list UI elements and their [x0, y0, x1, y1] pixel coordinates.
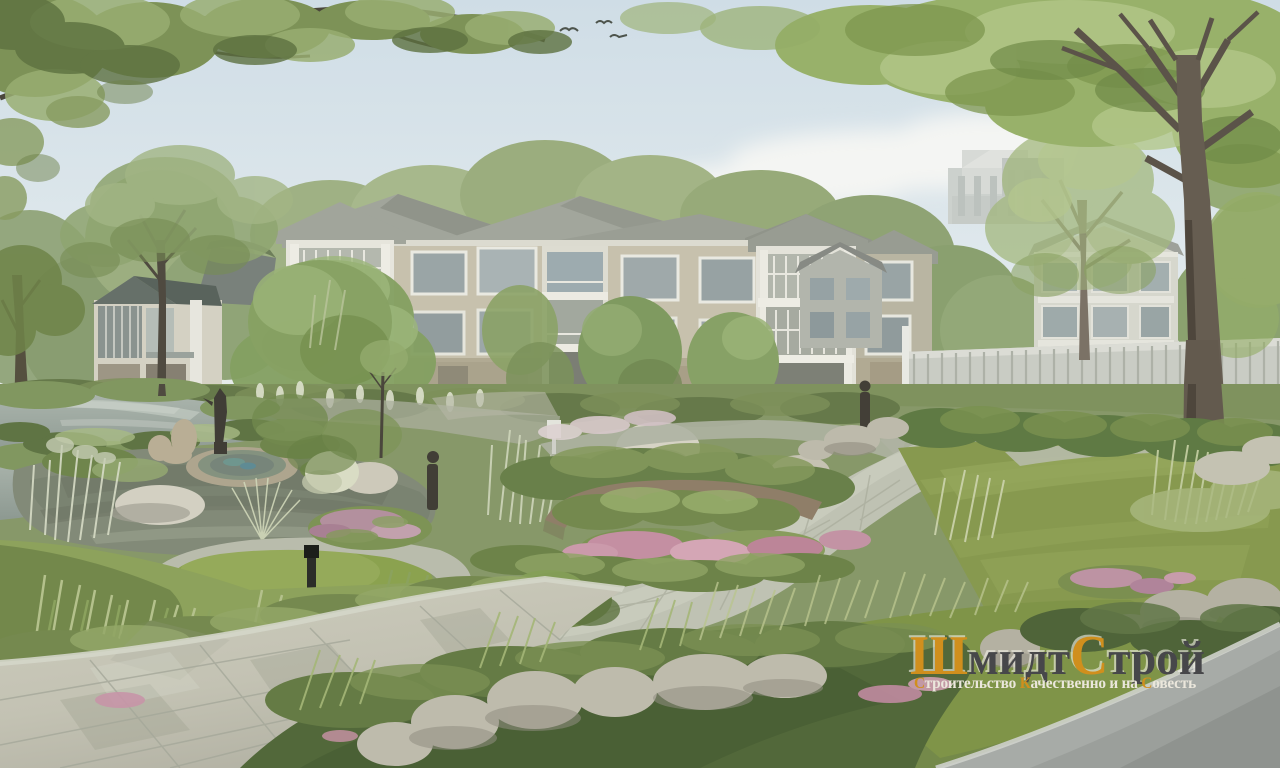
svg-text:Строительство Качественно и на: Строительство Качественно и на Совесть — [914, 675, 1196, 692]
